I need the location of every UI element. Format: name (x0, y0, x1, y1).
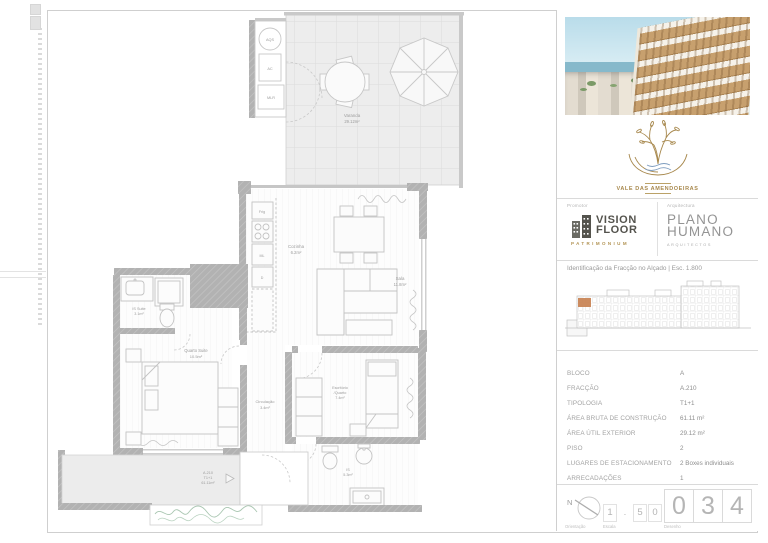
table-row: BLOCO A (567, 370, 751, 384)
title-block: VALE DAS AMENDOEIRAS Promotor Arquitectu… (556, 10, 758, 531)
parasol (390, 38, 458, 106)
room-area-varanda: 29.12m² (344, 119, 360, 124)
plano-humano-sub: ARQUITECTOS (667, 240, 734, 252)
room-area-escritorio: 7.4m² (335, 396, 345, 400)
buildings-icon (571, 215, 592, 238)
escritorio: Escritório /Quarto 7.4m² (292, 346, 426, 440)
living-kitchen: Frig ML D Cozinha 6.2m² Sala 11.8m² (238, 181, 428, 352)
unit-tag-area: 61.11m² (201, 481, 215, 485)
project-name: VALE DAS AMENDOEIRAS (557, 186, 758, 192)
room-area-is: 5.3m² (343, 473, 353, 477)
north-compass-icon: N (565, 490, 605, 524)
plano-humano-line2: HUMANO (667, 226, 734, 238)
project-logo: VALE DAS AMENDOEIRAS (557, 120, 758, 198)
promotor-label: Promotor (567, 203, 588, 208)
suite-wing: IS Suite 3.1m² Quarto Suite 10.5m² (113, 264, 248, 455)
drawing-number-label: Desenho (664, 524, 681, 529)
orientation-label: Orientação (565, 524, 585, 529)
label-aqs: AQS (266, 38, 274, 42)
room-label-cozinha: Cozinha (288, 244, 305, 249)
sheet-footer: N Orientação 1 . 5 0 Escala 0 3 4 Desenh… (557, 486, 758, 531)
unit-tag-type: T1+1 (204, 476, 213, 480)
brand-rule (645, 183, 671, 184)
north-letter: N (567, 498, 572, 507)
room-label-escritorio: Escritório (332, 386, 348, 390)
tech-closet: AQS AC MLR (249, 18, 286, 118)
vision-floor-logo: VISION FLOOR PATRIMONIUM (571, 215, 638, 246)
label-ac: AC (267, 67, 273, 71)
table-row: LUGARES DE ESTACIONAMENTO 2 Boxes indivi… (567, 460, 751, 474)
room-area-circulacao: 3.4m² (260, 406, 270, 410)
terrace: Varanda 29.12m² (284, 12, 464, 188)
table-row: FRACÇÃO A.210 (567, 385, 751, 399)
common-hall: A.210 T1+1 61.11m² (58, 450, 308, 525)
label-frig: Frig (259, 210, 265, 214)
label-mlr: MLR (267, 96, 275, 100)
table-row: PISO 2 (567, 445, 751, 459)
table-row: ÁREA ÚTIL EXTERIOR 29.12 m² (567, 430, 751, 444)
room-label-sala: Sala (396, 276, 405, 281)
label-d: D (261, 276, 264, 280)
almond-tree-icon (621, 120, 695, 176)
drawing-sheet: Varanda 29.12m² AQS AC MLR (0, 0, 768, 543)
room-area-quarto-suite: 10.5m² (190, 354, 203, 359)
elevation-drawing (563, 280, 753, 344)
room-area-sala: 11.8m² (394, 282, 407, 287)
drawing-number: 0 3 4 (664, 489, 752, 523)
sofa (317, 269, 397, 335)
elevation-caption: Identificação da Fracção no Alçado | Esc… (567, 265, 752, 272)
building-render-photo (565, 17, 750, 115)
room-label-is-suite: IS Suite (132, 307, 145, 311)
arquitectura-label: Arquitectura (667, 203, 695, 208)
greenery (587, 81, 596, 86)
divider (657, 202, 658, 256)
vision-floor-sub: PATRIMONIUM (571, 241, 638, 246)
label-ml: ML (260, 254, 265, 258)
room-area-cozinha: 6.2m² (291, 250, 302, 255)
room-label-varanda: Varanda (344, 113, 361, 118)
table-row: ÁREA BRUTA DE CONSTRUÇÃO 61.11 m² (567, 415, 751, 429)
room-label-quarto-suite: Quarto Suite (184, 348, 208, 353)
scale-value: 1 . 5 0 (603, 504, 663, 522)
scale-label: Escala (603, 524, 616, 529)
plano-humano-logo: PLANO HUMANO ARQUITECTOS (667, 214, 734, 252)
brand-rule (645, 193, 671, 194)
room-label-is: IS (346, 468, 350, 472)
highlighted-unit (578, 298, 591, 307)
partners-row: Promotor Arquitectura (557, 198, 758, 260)
room-area-is-suite: 3.1m² (134, 312, 144, 316)
room-label-escritorio2: /Quarto (334, 391, 347, 395)
room-label-circulacao: Circulação (256, 399, 276, 404)
circulation: Circulação 3.4m² (247, 345, 292, 453)
building-facade (627, 17, 750, 115)
table-row: TIPOLOGIA T1+1 (567, 400, 751, 414)
unit-tag-code: A.210 (203, 471, 213, 475)
vision-floor-line2: FLOOR (596, 225, 638, 235)
